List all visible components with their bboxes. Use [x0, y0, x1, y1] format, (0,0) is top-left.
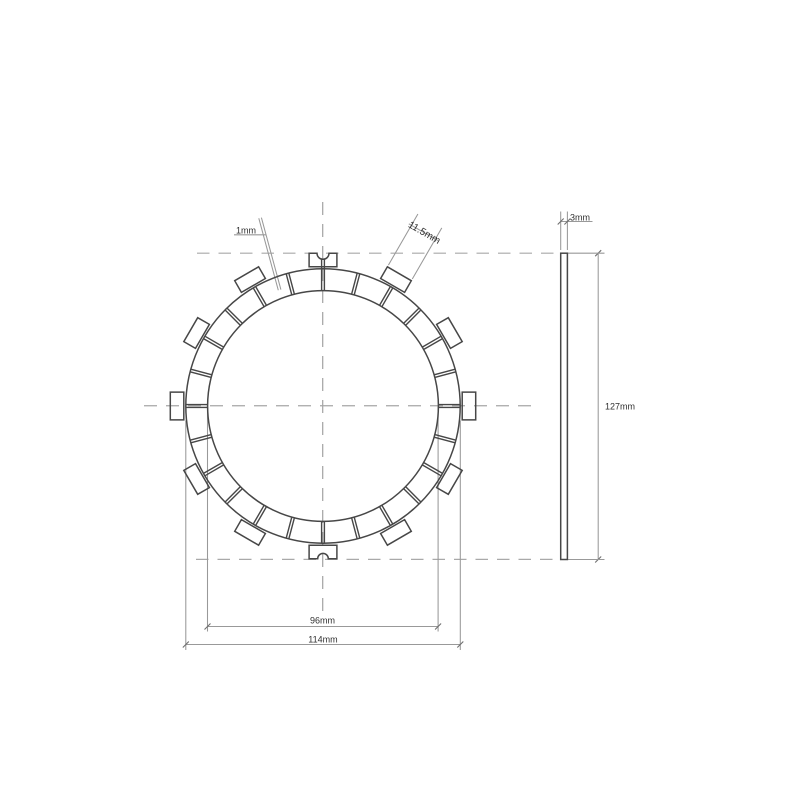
svg-text:96mm: 96mm [310, 616, 335, 626]
svg-text:114mm: 114mm [308, 634, 337, 644]
svg-text:127mm: 127mm [605, 402, 635, 412]
svg-text:3mm: 3mm [570, 213, 590, 223]
svg-text:1mm: 1mm [236, 226, 256, 236]
